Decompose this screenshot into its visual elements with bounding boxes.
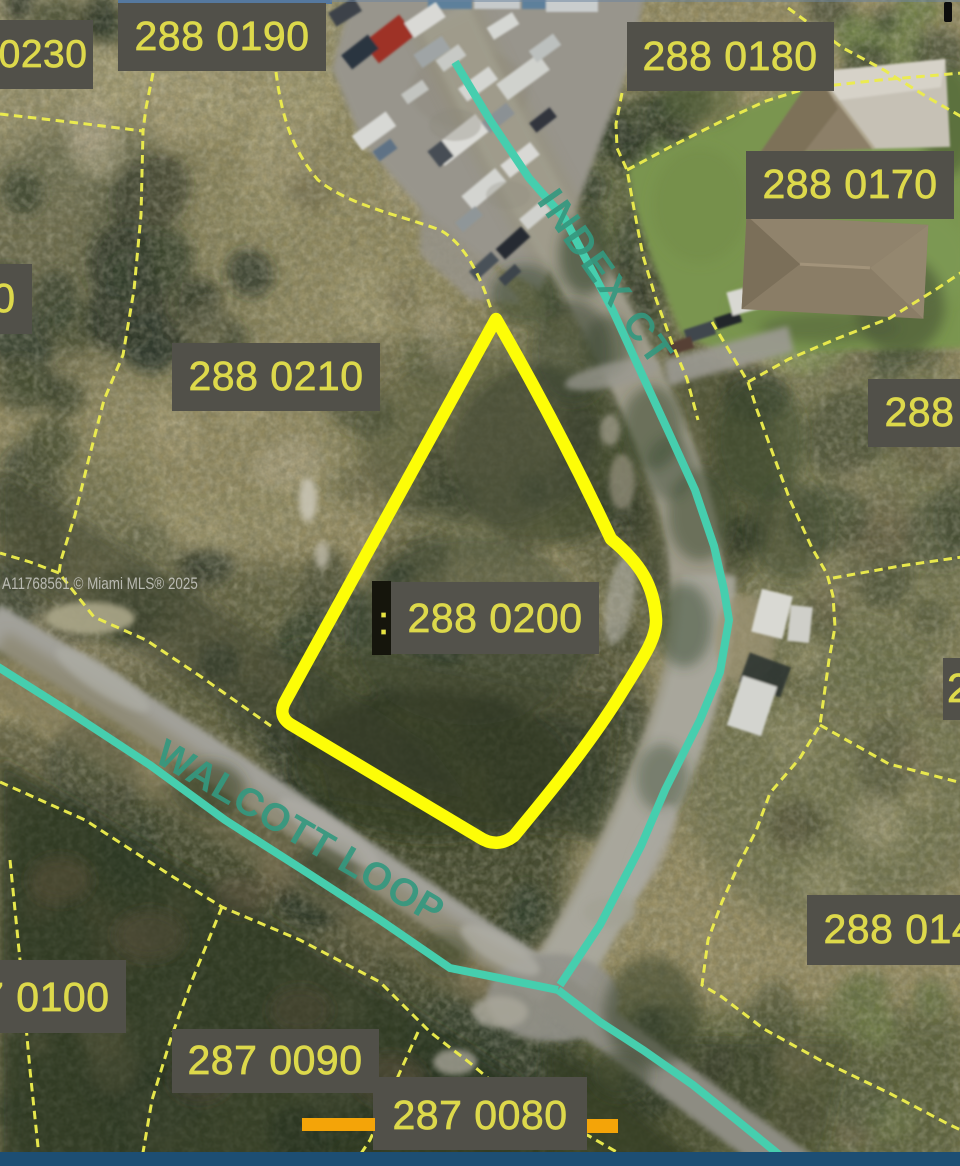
svg-text:287 0100: 287 0100 (0, 974, 110, 1020)
svg-text:288 0160: 288 0160 (884, 389, 960, 435)
svg-text:288 0140: 288 0140 (823, 906, 960, 952)
svg-text:0230: 0230 (0, 33, 87, 76)
svg-text:288 0170: 288 0170 (762, 161, 937, 207)
svg-text::: : (378, 599, 390, 643)
svg-text:A11768561 © Miami MLS® 2025: A11768561 © Miami MLS® 2025 (2, 575, 198, 594)
svg-text:288 0190: 288 0190 (134, 13, 309, 59)
svg-text:288 0180: 288 0180 (642, 33, 817, 79)
svg-text:287 0090: 287 0090 (187, 1037, 362, 1083)
svg-text:288 0220: 288 0220 (0, 275, 16, 321)
svg-text:287 0080: 287 0080 (392, 1092, 567, 1138)
svg-text:288 0210: 288 0210 (188, 353, 363, 399)
svg-text:288 0200: 288 0200 (407, 595, 582, 641)
svg-text:2: 2 (947, 665, 960, 711)
